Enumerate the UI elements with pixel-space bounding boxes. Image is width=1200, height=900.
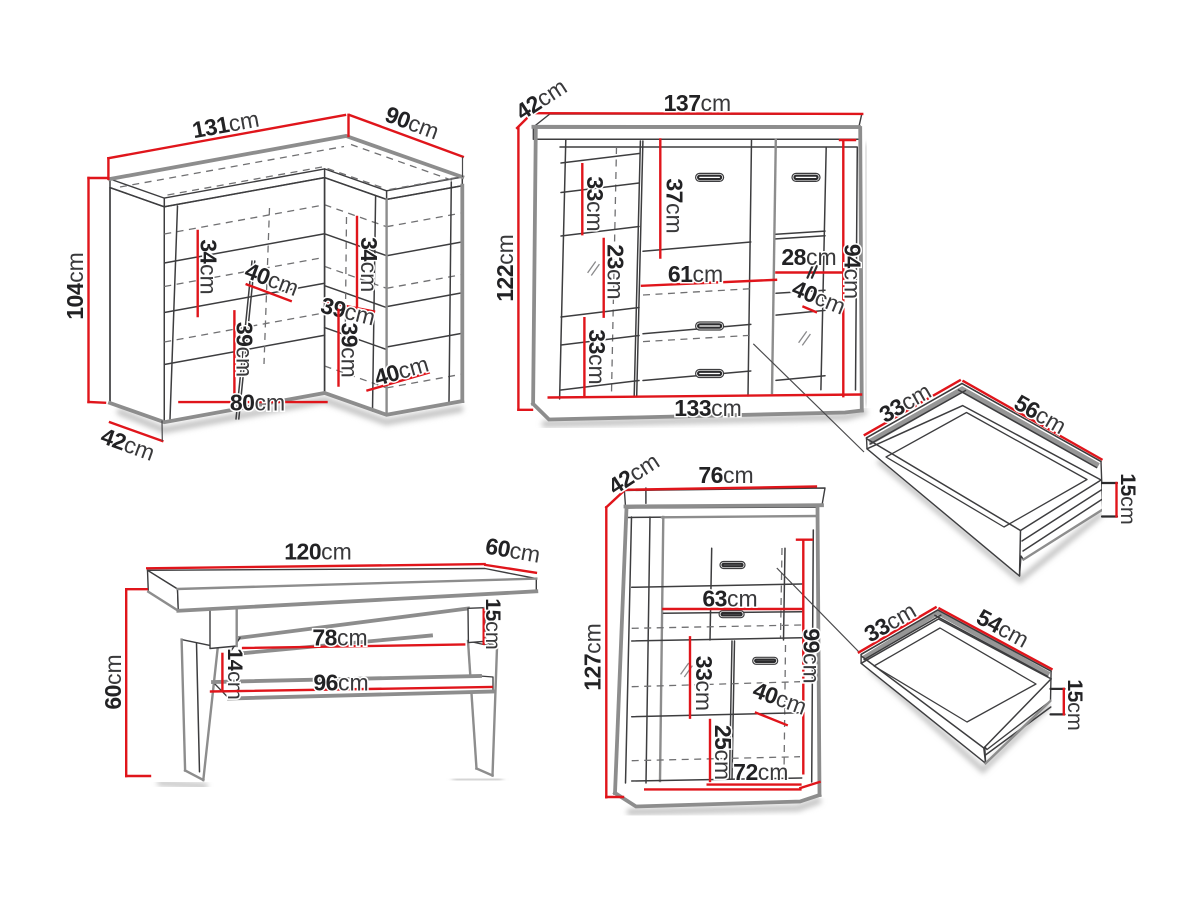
svg-text:15cm: 15cm (1063, 679, 1087, 731)
svg-text:28cm: 28cm (781, 244, 836, 270)
svg-text:80cm: 80cm (230, 390, 285, 416)
svg-text:34cm: 34cm (195, 239, 221, 294)
svg-text:137cm: 137cm (664, 90, 732, 116)
svg-text:33cm: 33cm (584, 329, 610, 384)
svg-text:76cm: 76cm (698, 462, 753, 488)
svg-text:122cm: 122cm (492, 234, 518, 302)
svg-text:133cm: 133cm (674, 395, 742, 421)
svg-text:37cm: 37cm (662, 178, 688, 233)
svg-text:15cm: 15cm (481, 598, 505, 650)
svg-text:99cm: 99cm (798, 628, 824, 683)
svg-text:96cm: 96cm (313, 670, 368, 696)
svg-text:127cm: 127cm (580, 623, 606, 691)
svg-text:72cm: 72cm (733, 759, 788, 785)
svg-text:34cm: 34cm (356, 237, 382, 292)
svg-text:60cm: 60cm (100, 654, 126, 709)
svg-text:39cm: 39cm (337, 323, 363, 378)
svg-text:15cm: 15cm (1116, 473, 1140, 525)
svg-text:63cm: 63cm (702, 586, 757, 612)
svg-text:94cm: 94cm (839, 244, 865, 299)
svg-text:33cm: 33cm (582, 176, 608, 231)
svg-text:61cm: 61cm (668, 261, 723, 287)
svg-text:104cm: 104cm (62, 252, 88, 320)
svg-text:120cm: 120cm (284, 539, 352, 565)
svg-text:23cm: 23cm (602, 244, 628, 299)
svg-text:78cm: 78cm (312, 625, 367, 651)
svg-text:39cm: 39cm (231, 322, 257, 377)
svg-text:33cm: 33cm (691, 656, 717, 711)
